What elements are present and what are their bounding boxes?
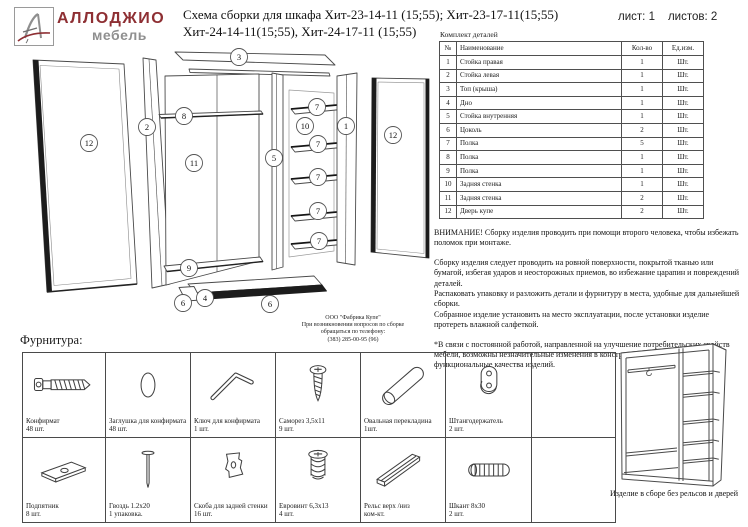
hardware-item-label: Конфирмат48 шт. [23, 417, 105, 438]
callout-10: 10 [297, 118, 314, 135]
hardware-item-label: Овальная перекладина1шт. [361, 417, 445, 438]
callout-11: 11 [186, 155, 203, 172]
svg-text:9: 9 [187, 263, 191, 273]
callout-7: 7 [310, 169, 327, 186]
parts-row: 4Дно1Шт. [440, 96, 704, 110]
callout-7: 7 [310, 136, 327, 153]
svg-text:1: 1 [344, 121, 348, 131]
callout-6: 6 [175, 295, 192, 312]
callout-2: 2 [139, 119, 156, 136]
title-line-1: Схема сборки для шкафа Хит-23-14-11 (15;… [183, 6, 628, 23]
callout-12: 12 [81, 135, 98, 152]
svg-text:2: 2 [145, 122, 149, 132]
hardware-item-label: Шкант 8х302 шт. [446, 502, 531, 523]
parts-col-header: Ед.изм. [663, 42, 704, 56]
callout-9: 9 [181, 260, 198, 277]
handling-paragraph: Сборку изделия следует проводить на ровн… [434, 258, 742, 331]
callout-7: 7 [309, 99, 326, 116]
hardware-section-title: Фурнитура: [20, 333, 83, 348]
hardware-empty-cell [532, 353, 616, 438]
svg-text:6: 6 [268, 299, 272, 309]
parts-col-header: Наименование [457, 42, 622, 56]
assembled-cabinet-drawing [613, 340, 748, 488]
hardware-item-foot-plate: Подпятник8 шт. [23, 438, 106, 523]
parts-row: 8Полка1Шт. [440, 151, 704, 165]
hardware-item-label: Заглушка для конфирмата48 шт. [106, 417, 190, 438]
contact-note-2: обращаться по телефону: [258, 329, 448, 336]
hardware-item-label: Рельс верх /низком-кт. [361, 502, 445, 523]
parts-header-row: №НаименованиеКол-воЕд.изм. [440, 42, 704, 56]
hardware-item-dowel: Шкант 8х302 шт. [446, 438, 532, 523]
hardware-item-euro-screw: Евровинт 6,3х134 шт. [276, 438, 361, 523]
hardware-grid: Конфирмат48 шт.Заглушка для конфирмата48… [22, 352, 616, 523]
sheet-number: лист: 1 [618, 11, 655, 23]
confirmat-screw-icon [23, 353, 105, 417]
contact-phone: (383) 285-00-95 (96) [258, 337, 448, 344]
svg-text:10: 10 [301, 121, 310, 131]
plug-cap-icon [106, 353, 190, 417]
svg-text:7: 7 [316, 139, 320, 149]
svg-text:12: 12 [389, 130, 398, 140]
hardware-item-label: Гвоздь 1.2х201 упаковка. [106, 502, 190, 523]
hardware-item-plug-cap: Заглушка для конфирмата48 шт. [106, 353, 191, 438]
diagram-right-door [371, 78, 429, 258]
parts-row: 1Стойка правая1Шт. [440, 56, 704, 70]
svg-text:7: 7 [315, 102, 319, 112]
callout-12: 12 [385, 127, 402, 144]
hardware-item-label: Саморез 3,5х119 шт. [276, 417, 360, 438]
hardware-item-label: Евровинт 6,3х134 шт. [276, 502, 360, 523]
hex-key-icon [191, 353, 275, 417]
sheets-total: листов: 2 [668, 11, 717, 23]
svg-text:7: 7 [316, 206, 320, 216]
callout-5: 5 [266, 150, 283, 167]
self-tapping-screw-icon [276, 353, 360, 417]
callout-1: 1 [338, 118, 355, 135]
assembly-instruction-sheet: АЛЛОДЖИО мебель Схема сборки для шкафа Х… [0, 0, 748, 527]
diagram-right-post [337, 73, 357, 265]
parts-row: 12Дверь купе2Шт. [440, 205, 704, 219]
hardware-item-label: Ключ для конфирмата1 шт. [191, 417, 275, 438]
hardware-empty-cell [532, 438, 616, 523]
parts-row: 3Топ (крыша)1Шт. [440, 83, 704, 97]
diagram-back-panel [165, 74, 259, 285]
hardware-item-label: Штангодержатель2 шт. [446, 417, 531, 438]
parts-row: 6Цоколь2Шт. [440, 123, 704, 137]
hardware-item-rod-holder: Штангодержатель2 шт. [446, 353, 532, 438]
parts-row: 9Полка1Шт. [440, 164, 704, 178]
hardware-item-label: Подпятник8 шт. [23, 502, 105, 523]
svg-text:5: 5 [272, 153, 276, 163]
rod-holder-icon [446, 353, 531, 417]
brand-subtitle: мебель [92, 27, 147, 43]
hardware-item-back-panel-clip: Скоба для задней стенки16 шт. [191, 438, 276, 523]
warning-paragraph: ВНИМАНИЕ! Сборку изделия проводить при п… [434, 228, 742, 249]
parts-table-body: 1Стойка правая1Шт.2Стойка левая1Шт.3Топ … [440, 56, 704, 219]
brand-logo-icon [14, 7, 54, 46]
diagram-inner-post [272, 73, 283, 270]
manufacturer-contact: ООО "Фабрика Купе" При возникновении воп… [258, 315, 448, 344]
parts-row: 2Стойка левая1Шт. [440, 69, 704, 83]
parts-row: 10Задняя стенка1Шт. [440, 178, 704, 192]
svg-text:6: 6 [181, 298, 185, 308]
sheet-counter: лист: 1 листов: 2 [618, 11, 746, 23]
callout-7: 7 [310, 203, 327, 220]
dowel-icon [446, 438, 531, 502]
svg-text:7: 7 [317, 236, 321, 246]
svg-text:3: 3 [237, 52, 241, 62]
svg-text:7: 7 [316, 172, 320, 182]
parts-col-header: № [440, 42, 457, 56]
callout-8: 8 [176, 108, 193, 125]
foot-plate-icon [23, 438, 105, 502]
euro-screw-icon [276, 438, 360, 502]
parts-row: 11Задняя стенка2Шт. [440, 191, 704, 205]
svg-text:12: 12 [85, 138, 94, 148]
nail-icon [106, 438, 190, 502]
exploded-assembly-diagram: 3122811951077777112646 [12, 48, 432, 333]
callout-6: 6 [262, 296, 279, 313]
rail-icon [361, 438, 445, 502]
parts-col-header: Кол-во [622, 42, 663, 56]
callout-4: 4 [197, 290, 214, 307]
callout-7: 7 [311, 233, 328, 250]
hardware-item-label: Скоба для задней стенки16 шт. [191, 502, 275, 523]
assembled-caption: Изделие в сборе без рельсов и дверей [600, 489, 748, 498]
hardware-item-self-tapping-screw: Саморез 3,5х119 шт. [276, 353, 361, 438]
hardware-item-confirmat-screw: Конфирмат48 шт. [23, 353, 106, 438]
oval-crossbar-icon [361, 353, 445, 417]
svg-text:11: 11 [190, 158, 198, 168]
parts-table: №НаименованиеКол-воЕд.изм. 1Стойка права… [439, 41, 704, 219]
parts-row: 5Стойка внутренняя1Шт. [440, 110, 704, 124]
back-panel-clip-icon [191, 438, 275, 502]
hardware-item-rail: Рельс верх /низком-кт. [361, 438, 446, 523]
parts-list-caption: Комплект деталей [440, 30, 689, 39]
brand-name: АЛЛОДЖИО [57, 10, 165, 28]
svg-text:8: 8 [182, 111, 186, 121]
hardware-item-oval-crossbar: Овальная перекладина1шт. [361, 353, 446, 438]
parts-list: Комплект деталей №НаименованиеКол-воЕд.и… [439, 30, 689, 219]
hardware-item-nail: Гвоздь 1.2х201 упаковка. [106, 438, 191, 523]
parts-row: 7Полка5Шт. [440, 137, 704, 151]
callout-3: 3 [231, 49, 248, 66]
hardware-item-hex-key: Ключ для конфирмата1 шт. [191, 353, 276, 438]
diagram-top-panel [175, 52, 335, 65]
